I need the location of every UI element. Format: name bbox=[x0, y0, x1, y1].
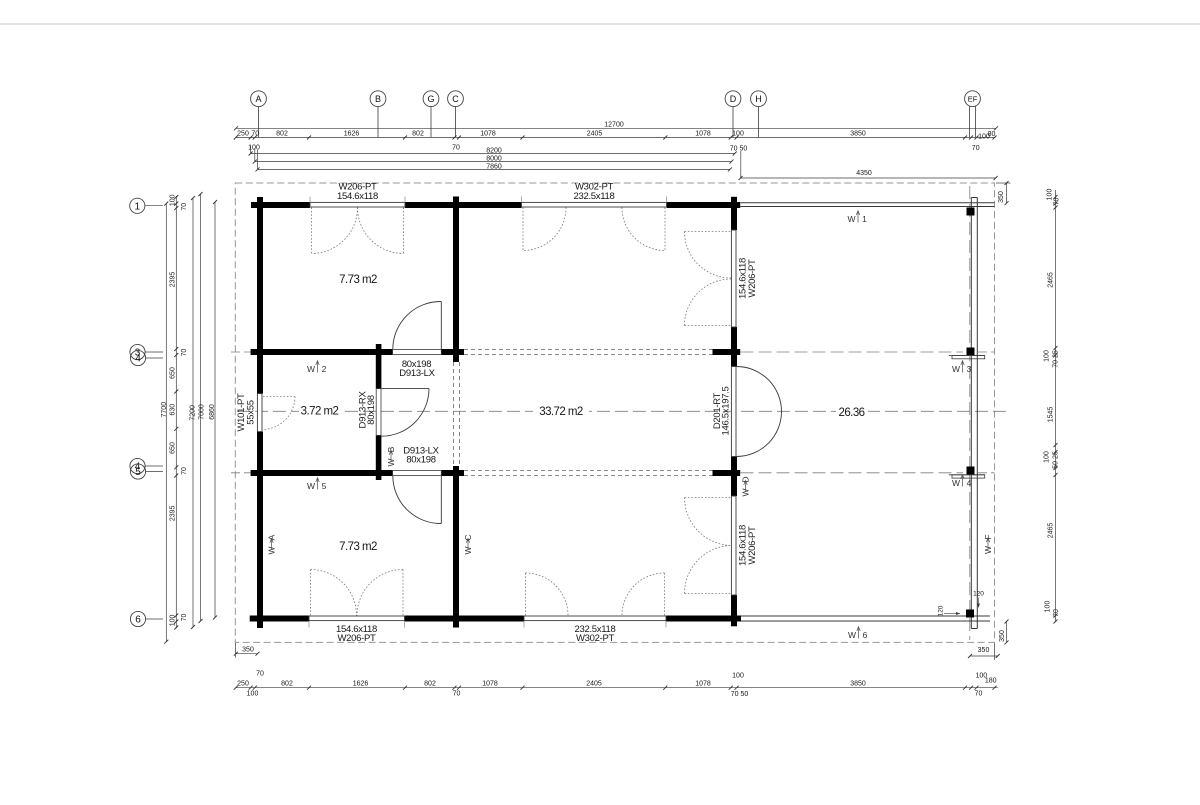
svg-text:F: F bbox=[983, 534, 993, 539]
svg-text:1545: 1545 bbox=[1048, 407, 1055, 423]
svg-text:70: 70 bbox=[1054, 198, 1061, 206]
svg-text:W206-PT: W206-PT bbox=[747, 526, 758, 565]
svg-text:250: 250 bbox=[237, 680, 249, 687]
svg-text:70: 70 bbox=[181, 203, 188, 211]
svg-text:C: C bbox=[452, 94, 459, 104]
svg-text:100: 100 bbox=[248, 144, 260, 151]
svg-text:W: W bbox=[952, 478, 960, 488]
svg-text:4: 4 bbox=[967, 478, 972, 488]
svg-text:650: 650 bbox=[169, 442, 176, 454]
svg-text:70: 70 bbox=[181, 467, 188, 475]
svg-text:W: W bbox=[307, 481, 315, 491]
svg-text:802: 802 bbox=[281, 680, 293, 687]
svg-text:630: 630 bbox=[169, 404, 176, 416]
svg-text:70: 70 bbox=[452, 144, 460, 151]
svg-text:146.5x197.5: 146.5x197.5 bbox=[721, 386, 732, 435]
svg-text:1078: 1078 bbox=[695, 680, 711, 687]
svg-text:70: 70 bbox=[972, 145, 980, 152]
svg-text:4: 4 bbox=[135, 354, 141, 365]
svg-text:5: 5 bbox=[322, 481, 327, 491]
svg-text:12700: 12700 bbox=[604, 121, 624, 128]
svg-text:8200: 8200 bbox=[486, 148, 502, 155]
svg-text:W: W bbox=[307, 364, 315, 374]
svg-text:7200: 7200 bbox=[190, 405, 197, 421]
svg-text:3850: 3850 bbox=[850, 130, 866, 137]
svg-text:70: 70 bbox=[181, 349, 188, 357]
svg-text:120: 120 bbox=[938, 605, 945, 616]
svg-text:100: 100 bbox=[1045, 601, 1052, 613]
svg-text:100: 100 bbox=[247, 690, 259, 697]
svg-text:70: 70 bbox=[1053, 609, 1060, 617]
svg-text:4350: 4350 bbox=[856, 170, 872, 177]
svg-text:W206-PT: W206-PT bbox=[747, 259, 758, 298]
svg-text:350: 350 bbox=[978, 647, 990, 654]
svg-text:100: 100 bbox=[169, 614, 176, 626]
svg-text:50 25: 50 25 bbox=[1053, 451, 1060, 469]
svg-text:B: B bbox=[386, 446, 396, 452]
svg-text:B: B bbox=[375, 94, 381, 104]
svg-text:80x198: 80x198 bbox=[406, 454, 435, 465]
svg-text:350: 350 bbox=[998, 191, 1005, 203]
svg-text:1626: 1626 bbox=[353, 680, 369, 687]
svg-text:1: 1 bbox=[862, 214, 867, 224]
svg-text:6860: 6860 bbox=[209, 404, 216, 420]
svg-text:250: 250 bbox=[237, 130, 249, 137]
svg-text:D: D bbox=[741, 476, 751, 482]
svg-text:2395: 2395 bbox=[169, 506, 176, 522]
svg-text:D913-LX: D913-LX bbox=[399, 368, 435, 379]
svg-text:H: H bbox=[755, 94, 762, 104]
svg-text:26.36: 26.36 bbox=[838, 407, 864, 419]
svg-text:70: 70 bbox=[251, 130, 259, 137]
svg-text:D: D bbox=[730, 94, 737, 104]
svg-text:7700: 7700 bbox=[161, 402, 168, 418]
svg-text:2465: 2465 bbox=[1048, 523, 1055, 539]
svg-text:350: 350 bbox=[999, 630, 1006, 642]
svg-text:180: 180 bbox=[985, 677, 997, 684]
svg-text:6: 6 bbox=[863, 630, 868, 640]
svg-text:2395: 2395 bbox=[169, 272, 176, 288]
svg-text:7000: 7000 bbox=[199, 404, 206, 420]
svg-text:7860: 7860 bbox=[486, 164, 502, 171]
svg-text:7.73 m2: 7.73 m2 bbox=[339, 274, 377, 286]
svg-text:70 50: 70 50 bbox=[730, 146, 748, 153]
svg-text:120: 120 bbox=[973, 591, 984, 598]
svg-text:70 50: 70 50 bbox=[731, 691, 749, 698]
svg-text:2: 2 bbox=[322, 364, 327, 374]
svg-text:650: 650 bbox=[169, 367, 176, 379]
svg-text:W302-PT: W302-PT bbox=[576, 633, 615, 644]
svg-text:W: W bbox=[848, 630, 856, 640]
svg-text:802: 802 bbox=[424, 680, 436, 687]
svg-text:802: 802 bbox=[412, 130, 424, 137]
svg-text:7.73 m2: 7.73 m2 bbox=[339, 541, 377, 553]
svg-text:100: 100 bbox=[732, 130, 744, 137]
svg-text:802: 802 bbox=[276, 130, 288, 137]
svg-text:70: 70 bbox=[975, 690, 983, 697]
svg-text:W: W bbox=[847, 214, 855, 224]
svg-text:70: 70 bbox=[181, 614, 188, 622]
svg-text:2465: 2465 bbox=[1048, 272, 1055, 288]
svg-text:33.72 m2: 33.72 m2 bbox=[539, 406, 583, 418]
svg-text:100: 100 bbox=[732, 672, 744, 679]
svg-text:70: 70 bbox=[256, 671, 264, 678]
svg-text:3850: 3850 bbox=[850, 680, 866, 687]
svg-text:100: 100 bbox=[1044, 451, 1051, 463]
svg-text:W: W bbox=[952, 364, 960, 374]
svg-text:100: 100 bbox=[1044, 350, 1051, 362]
svg-text:1626: 1626 bbox=[344, 130, 360, 137]
svg-text:C: C bbox=[463, 534, 473, 540]
svg-text:5: 5 bbox=[135, 467, 141, 478]
svg-text:154.6x118: 154.6x118 bbox=[337, 191, 378, 202]
svg-text:W206-PT: W206-PT bbox=[337, 633, 376, 644]
svg-text:3.72 m2: 3.72 m2 bbox=[301, 406, 339, 418]
svg-text:70 25: 70 25 bbox=[1053, 350, 1060, 368]
svg-text:2405: 2405 bbox=[587, 130, 603, 137]
svg-text:EF: EF bbox=[968, 94, 978, 103]
svg-text:1078: 1078 bbox=[695, 130, 711, 137]
svg-text:A: A bbox=[255, 94, 261, 104]
svg-text:1078: 1078 bbox=[482, 680, 498, 687]
svg-text:80x198: 80x198 bbox=[366, 395, 377, 424]
svg-text:80: 80 bbox=[988, 131, 996, 138]
svg-text:G: G bbox=[427, 94, 434, 104]
svg-text:3: 3 bbox=[967, 364, 972, 374]
svg-text:350: 350 bbox=[242, 647, 254, 654]
svg-text:1078: 1078 bbox=[480, 130, 496, 137]
svg-text:1: 1 bbox=[135, 201, 141, 212]
svg-text:8000: 8000 bbox=[486, 156, 502, 163]
svg-text:2405: 2405 bbox=[586, 680, 602, 687]
svg-text:A: A bbox=[267, 534, 277, 540]
svg-text:6: 6 bbox=[135, 615, 141, 626]
svg-text:70: 70 bbox=[453, 690, 461, 697]
svg-text:232.5x118: 232.5x118 bbox=[574, 191, 615, 202]
svg-text:100: 100 bbox=[1047, 189, 1054, 201]
svg-text:100: 100 bbox=[169, 194, 176, 206]
svg-text:55x55: 55x55 bbox=[246, 400, 257, 424]
